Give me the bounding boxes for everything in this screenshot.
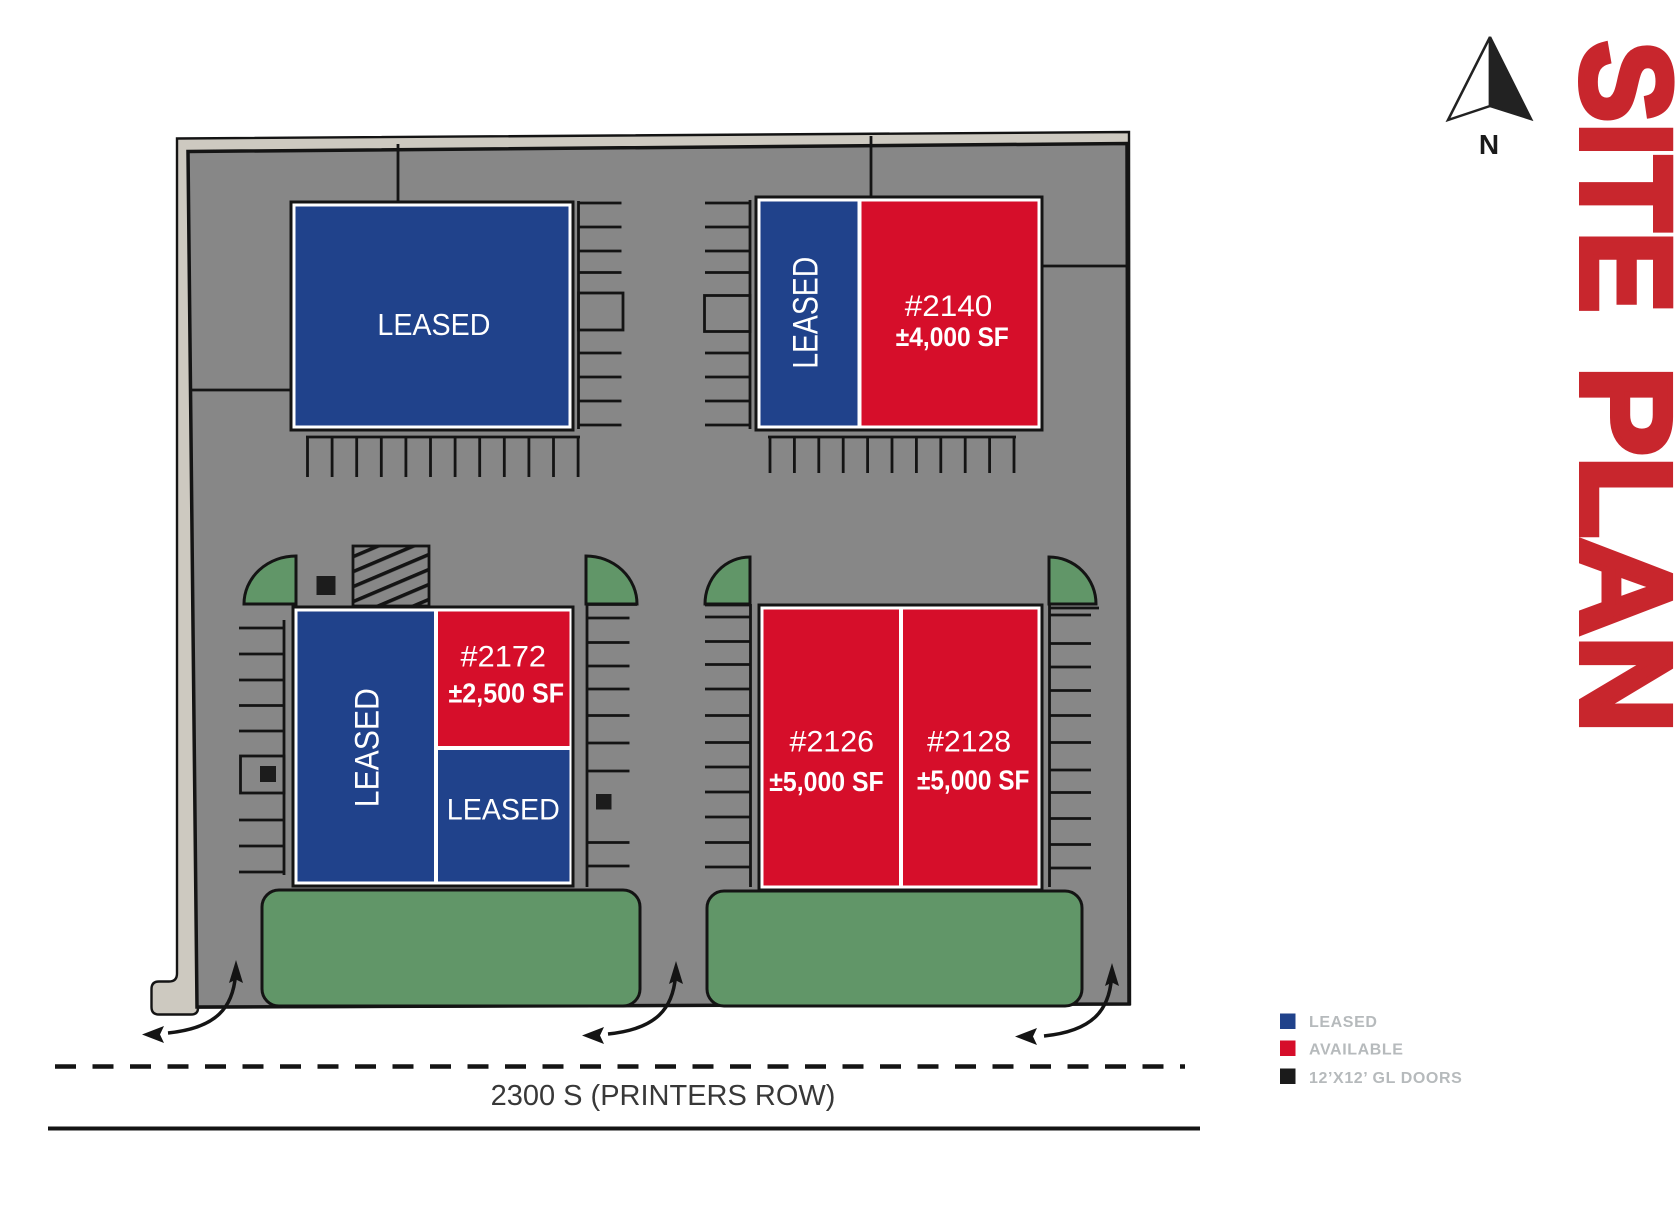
svg-text:2300 S (PRINTERS ROW): 2300 S (PRINTERS ROW) bbox=[491, 1080, 836, 1112]
svg-text:±5,000 SF: ±5,000 SF bbox=[769, 766, 883, 797]
svg-text:#2140: #2140 bbox=[905, 290, 993, 323]
svg-text:12’X12’ GL DOORS: 12’X12’ GL DOORS bbox=[1309, 1070, 1462, 1087]
svg-text:±4,000 SF: ±4,000 SF bbox=[896, 322, 1009, 352]
svg-text:N: N bbox=[1479, 129, 1499, 160]
svg-text:LEASED: LEASED bbox=[377, 307, 490, 342]
svg-text:#2128: #2128 bbox=[927, 725, 1011, 758]
svg-text:SITE: SITE bbox=[1554, 41, 1680, 313]
svg-text:PLAN: PLAN bbox=[1554, 366, 1680, 733]
svg-text:#2126: #2126 bbox=[790, 726, 875, 759]
svg-text:AVAILABLE: AVAILABLE bbox=[1309, 1042, 1404, 1059]
svg-text:LEASED: LEASED bbox=[447, 793, 560, 826]
svg-text:LEASED: LEASED bbox=[786, 257, 825, 369]
svg-text:±5,000 SF: ±5,000 SF bbox=[917, 765, 1030, 796]
svg-text:±2,500 SF: ±2,500 SF bbox=[449, 678, 565, 709]
svg-text:#2172: #2172 bbox=[461, 641, 547, 674]
svg-text:LEASED: LEASED bbox=[1309, 1014, 1378, 1031]
svg-text:LEASED: LEASED bbox=[349, 688, 387, 807]
